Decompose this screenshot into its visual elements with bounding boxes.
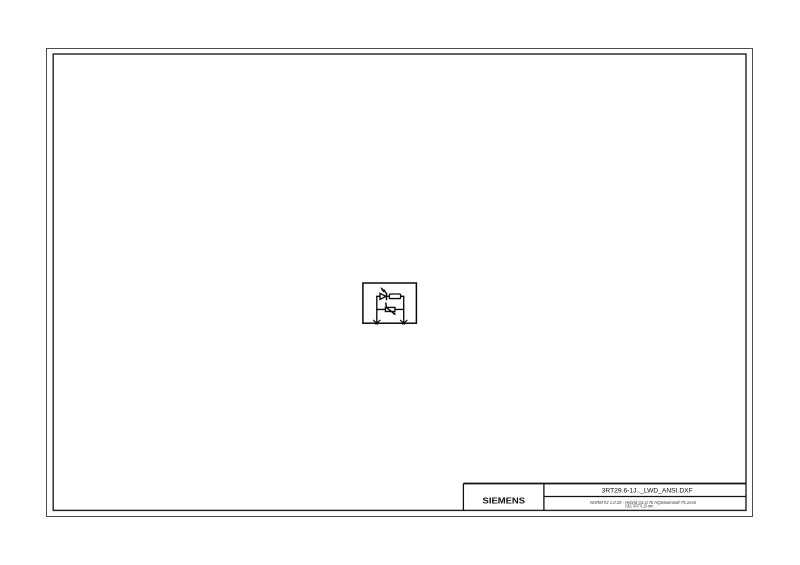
svg-text:SIEMENS: SIEMENS xyxy=(483,495,526,505)
svg-text:3RT29.6-1J.._LWD_ANSI.DXF: 3RT29.6-1J.._LWD_ANSI.DXF xyxy=(602,488,693,495)
svg-text:FaS.TIFF 4,19 mm: FaS.TIFF 4,19 mm xyxy=(625,504,653,509)
